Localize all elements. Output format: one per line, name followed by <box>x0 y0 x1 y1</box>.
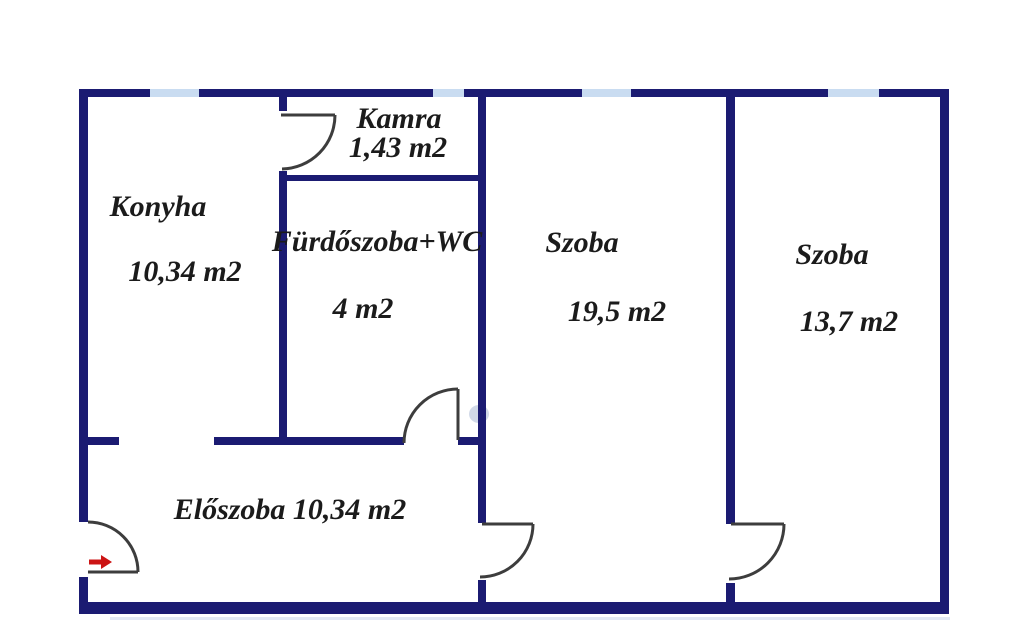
svg-text:Előszoba 10,34 m2: Előszoba 10,34 m2 <box>173 493 407 526</box>
svg-text:19,5 m2: 19,5 m2 <box>568 295 666 328</box>
svg-text:Szoba: Szoba <box>545 226 618 259</box>
svg-text:10,34 m2: 10,34 m2 <box>128 255 241 288</box>
svg-text:Konyha: Konyha <box>109 190 207 223</box>
svg-text:Szoba: Szoba <box>795 238 868 271</box>
svg-text:4 m2: 4 m2 <box>332 292 394 325</box>
svg-text:Fürdőszoba+WC: Fürdőszoba+WC <box>271 225 483 258</box>
svg-text:1,43 m2: 1,43 m2 <box>349 131 447 164</box>
svg-text:13,7 m2: 13,7 m2 <box>800 305 898 338</box>
